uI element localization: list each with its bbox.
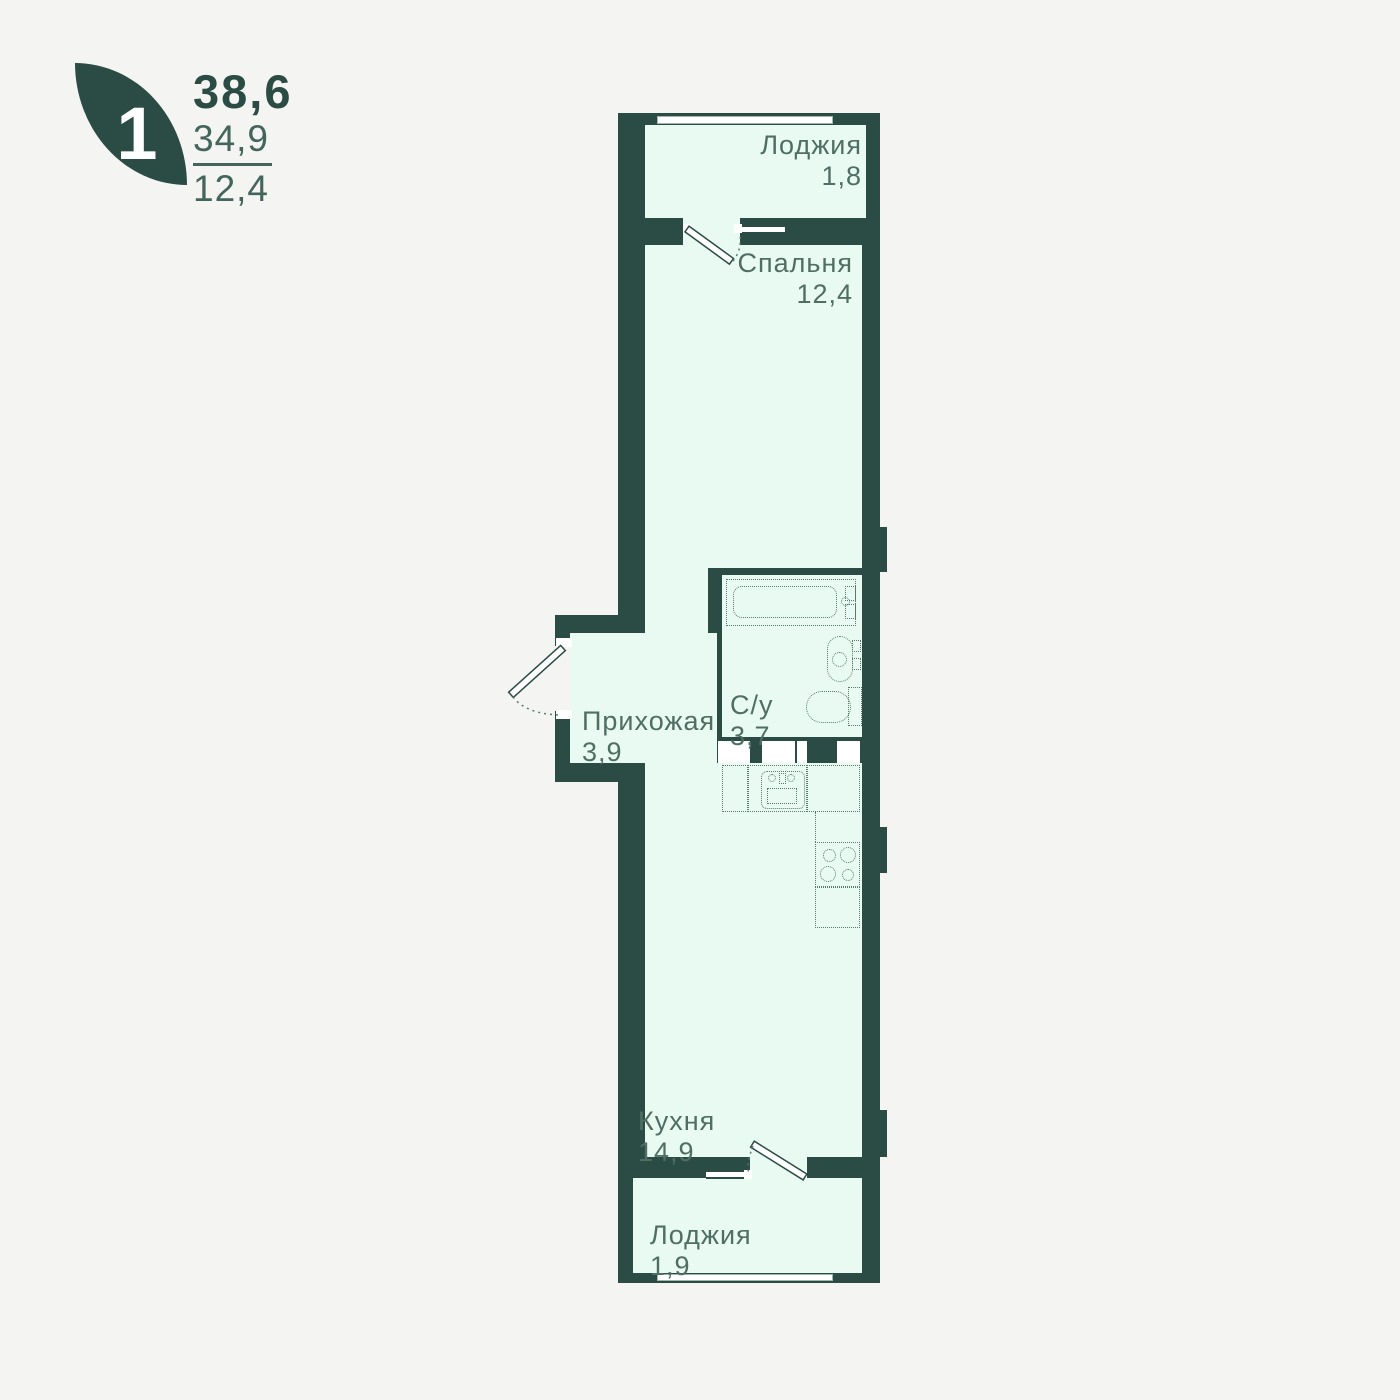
wall-bump-right-3: [880, 1110, 887, 1157]
label-bedroom: Спальня 12,4: [653, 248, 853, 310]
floorplan-page: 1 38,6 34,9 12,4: [0, 0, 1400, 1400]
label-kitchen-name: Кухня: [638, 1106, 838, 1137]
label-bedroom-name: Спальня: [653, 248, 853, 279]
kitchen-door-frame-right: [799, 1170, 807, 1179]
label-loggia-top-name: Лоджия: [662, 130, 862, 161]
kitchen-sink-knob-2: [787, 774, 795, 782]
kitchen-sink-tap: [779, 773, 786, 784]
room-count: 1: [116, 97, 157, 171]
wall-bump-right-1: [880, 527, 887, 572]
window-loggia-top: [657, 116, 833, 124]
living-area: 34,9: [193, 118, 272, 166]
stove-burner-1: [823, 849, 836, 862]
label-bathroom-area: 3,7: [730, 721, 850, 752]
room-kitchen: [645, 763, 862, 1157]
bathtub-tap-1: [845, 586, 856, 601]
label-bedroom-area: 12,4: [653, 279, 853, 310]
label-loggia-bottom-name: Лоджия: [650, 1220, 850, 1251]
label-loggia-bottom-area: 1,9: [650, 1251, 850, 1282]
total-area: 38,6: [193, 64, 292, 119]
room-area: 12,4: [193, 168, 269, 210]
bedroom-door-frame-right: [734, 224, 742, 233]
label-loggia-top: Лоджия 1,8: [662, 130, 862, 192]
label-kitchen-area: 14,9: [638, 1137, 838, 1168]
toilet-tank: [848, 687, 862, 726]
label-bathroom-name: С/у: [730, 690, 850, 721]
sink-tap-1: [852, 640, 861, 652]
kitchen-sink-basin: [767, 788, 797, 804]
stove-burner-3: [820, 866, 836, 882]
window-bedroom: [740, 225, 785, 234]
sink-drain: [832, 652, 847, 667]
label-loggia-top-area: 1,8: [662, 161, 862, 192]
stove-burner-2: [840, 847, 856, 863]
kitchen-cabinet: [815, 887, 860, 928]
room-count-leaf-badge: 1: [75, 63, 187, 185]
kitchen-counter-3: [807, 765, 860, 812]
bathtub-tap-2: [845, 604, 856, 619]
kitchen-door-frame-left: [744, 1170, 752, 1179]
entrance-door-arc: [513, 697, 560, 715]
kitchen-sink-knob-1: [768, 774, 776, 782]
kitchen-counter-1: [722, 765, 748, 812]
kitchen-counter-connector: [815, 812, 816, 842]
bathtub-basin: [733, 586, 837, 618]
label-kitchen: Кухня 14,9: [638, 1106, 838, 1168]
entrance-frame-bottom: [556, 710, 572, 719]
entrance-door-opening: [555, 646, 570, 711]
wall-bump-right-2: [880, 827, 887, 873]
label-bathroom: С/у 3,7: [730, 690, 850, 752]
stove-burner-4: [842, 869, 854, 881]
entrance-frame-top: [556, 638, 572, 647]
bedroom-door-frame-left: [683, 224, 692, 233]
sink-tap-2: [852, 658, 861, 670]
label-loggia-bottom: Лоджия 1,9: [650, 1220, 850, 1282]
